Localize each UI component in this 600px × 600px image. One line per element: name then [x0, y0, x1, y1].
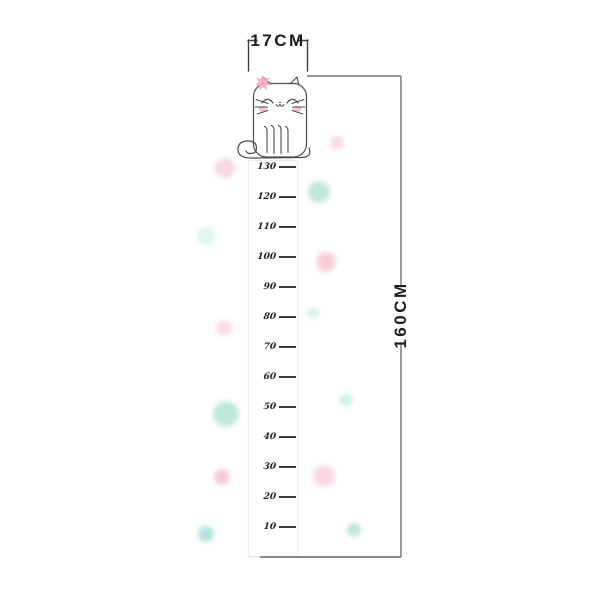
ruler-value-label: 80	[249, 312, 276, 322]
ruler-value-label: 20	[249, 492, 276, 502]
ruler-value-label: 10	[249, 522, 276, 532]
ruler-tick-line	[279, 196, 296, 198]
pastel-dot	[308, 181, 330, 203]
ruler-tick-line	[279, 256, 296, 258]
ruler-value-label: 60	[249, 372, 276, 382]
ruler-mark: 60	[248, 372, 297, 384]
ruler-tick-line	[279, 226, 296, 228]
ruler-mark: 50	[248, 402, 297, 414]
ruler-value-label: 40	[249, 432, 276, 442]
ruler-mark: 120	[248, 192, 297, 204]
ruler-mark: 110	[248, 222, 297, 234]
height-dimension-label: 160CM	[389, 255, 413, 375]
ruler-mark: 20	[248, 492, 297, 504]
pastel-dot	[197, 227, 215, 245]
ruler-tick-line	[279, 436, 296, 438]
ruler-value-label: 70	[249, 342, 276, 352]
pastel-dot	[330, 136, 344, 150]
pastel-dot	[316, 252, 336, 272]
ruler-tick-line	[279, 316, 296, 318]
pastel-dot	[215, 158, 235, 178]
ruler-mark: 90	[248, 282, 297, 294]
pastel-dot	[216, 320, 232, 336]
pastel-dot	[213, 401, 239, 427]
ruler-tick-line	[279, 166, 296, 168]
ruler-tick-line	[279, 286, 296, 288]
ruler-tick-line	[279, 496, 296, 498]
pastel-dot	[214, 469, 230, 485]
decorative-dots-layer	[0, 0, 600, 600]
ruler-value-label: 30	[249, 462, 276, 472]
ruler-mark: 80	[248, 312, 297, 324]
ruler-tick-line	[279, 346, 296, 348]
ruler-value-label: 90	[249, 282, 276, 292]
ruler-value-label: 130	[249, 162, 276, 172]
ruler-mark: 100	[248, 252, 297, 264]
pastel-dot	[198, 526, 214, 542]
ruler-tick-line	[279, 406, 296, 408]
pastel-dot	[307, 307, 319, 319]
ruler-value-label: 110	[249, 222, 276, 232]
product-image-canvas: { "dimensions": { "width_label": "17CM",…	[0, 0, 600, 600]
ruler-tick-line	[279, 376, 296, 378]
ruler-value-label: 100	[249, 252, 276, 262]
pastel-dot	[347, 523, 361, 537]
ruler-tick-line	[279, 526, 296, 528]
width-dimension-label: 17CM	[238, 31, 318, 51]
ruler-mark: 40	[248, 432, 297, 444]
pastel-dot	[339, 393, 353, 407]
ruler-mark: 30	[248, 462, 297, 474]
ruler-tick-line	[279, 466, 296, 468]
ruler-value-label: 120	[249, 192, 276, 202]
pastel-dot	[313, 465, 335, 487]
ruler-mark: 70	[248, 342, 297, 354]
ruler-mark: 130	[248, 162, 297, 174]
ruler-mark: 10	[248, 522, 297, 534]
ruler-value-label: 50	[249, 402, 276, 412]
